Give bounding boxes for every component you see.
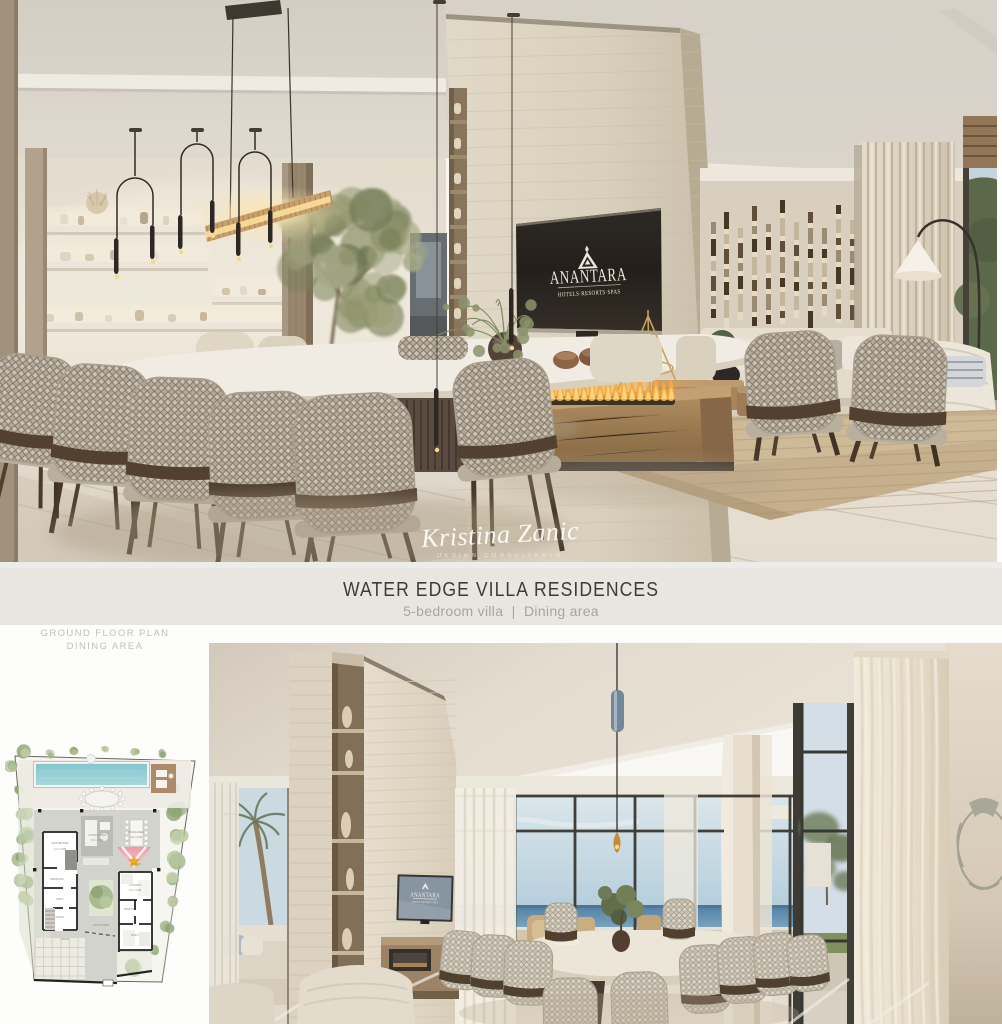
svg-text:DINING AREA: DINING AREA: [128, 830, 145, 834]
svg-text:LIVING ROOM: LIVING ROOM: [88, 833, 105, 837]
svg-text:MASTER BDR: MASTER BDR: [51, 841, 68, 845]
svg-text:STAIR: STAIR: [61, 937, 69, 941]
svg-text:4.2 x 3.8M: 4.2 x 3.8M: [54, 847, 66, 851]
svg-text:DESIGN CONSULTANTS: DESIGN CONSULTANTS: [437, 553, 563, 559]
svg-text:PANTRY: PANTRY: [124, 907, 135, 911]
svg-text:FOYER: FOYER: [132, 862, 141, 866]
svg-text:DRESSING: DRESSING: [50, 877, 64, 881]
svg-text:GUEST: GUEST: [56, 915, 65, 919]
svg-text:3.8 x 3.2M: 3.8 x 3.2M: [130, 835, 142, 839]
svg-text:BATH: BATH: [57, 897, 64, 901]
svg-text:KITCHEN: KITCHEN: [129, 883, 141, 887]
svg-text:3.6 x 3.0M: 3.6 x 3.0M: [129, 888, 141, 892]
svg-text:BDR 2: BDR 2: [131, 933, 139, 937]
svg-text:6.0 x 4.5M: 6.0 x 4.5M: [91, 838, 103, 842]
svg-text:COURTYARD: COURTYARD: [93, 923, 109, 927]
